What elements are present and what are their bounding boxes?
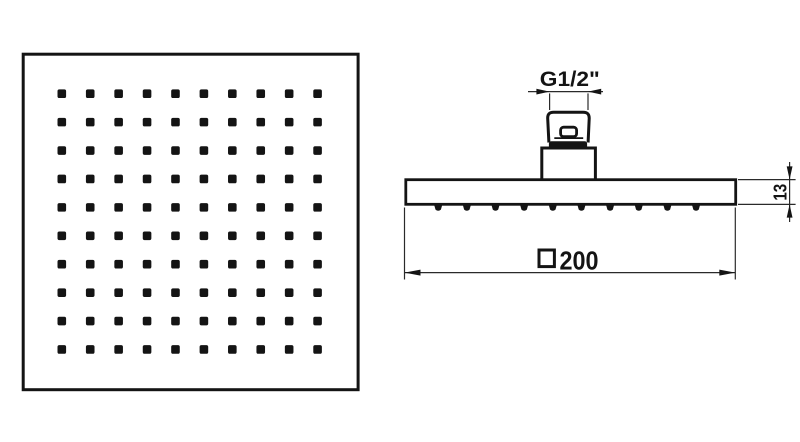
svg-text:G1/2": G1/2" (540, 68, 600, 91)
svg-text:13: 13 (771, 184, 791, 201)
svg-text:200: 200 (560, 245, 599, 275)
